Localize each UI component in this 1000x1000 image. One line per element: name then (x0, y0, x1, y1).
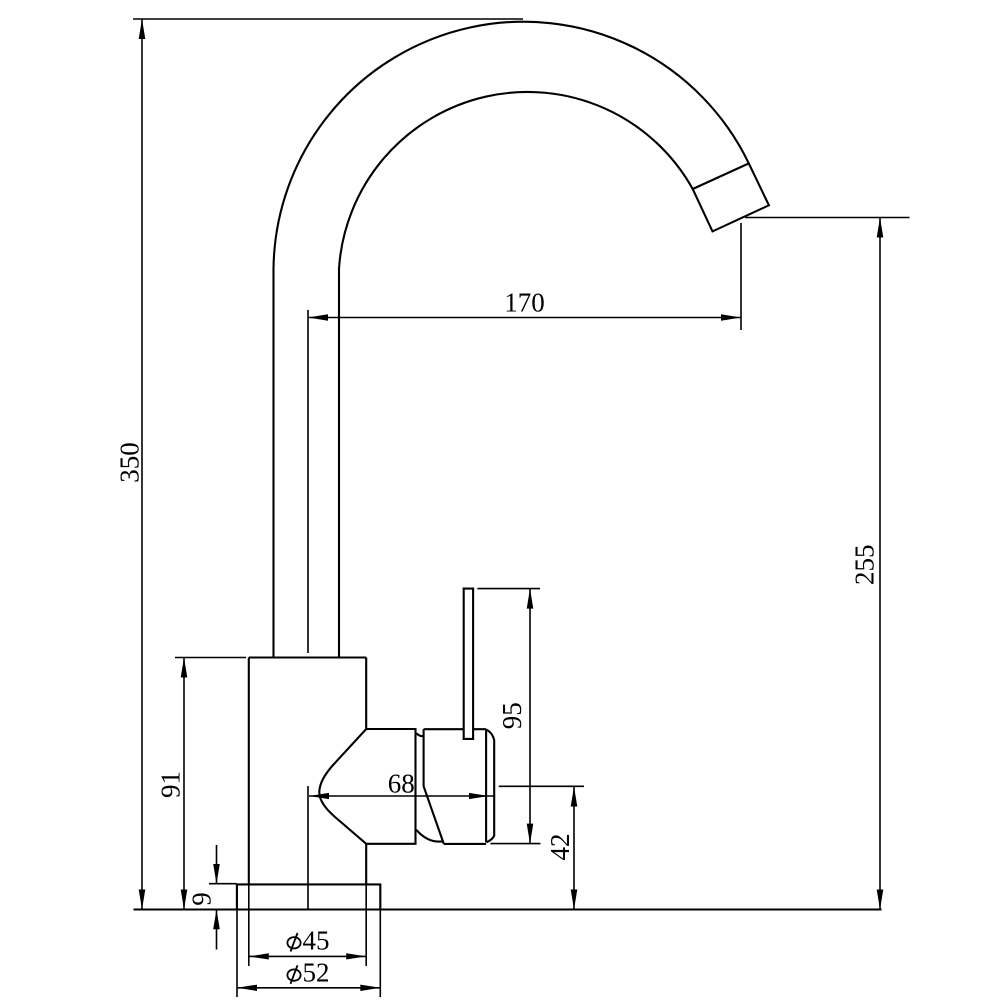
svg-text:42: 42 (545, 834, 575, 861)
svg-text:45: 45 (303, 926, 330, 956)
svg-text:95: 95 (497, 702, 527, 729)
svg-text:68: 68 (388, 769, 415, 799)
svg-text:170: 170 (504, 288, 545, 318)
svg-text:52: 52 (303, 957, 330, 987)
svg-text:9: 9 (187, 892, 217, 906)
svg-text:350: 350 (115, 442, 145, 483)
svg-text:91: 91 (155, 771, 185, 798)
svg-text:255: 255 (850, 545, 880, 586)
